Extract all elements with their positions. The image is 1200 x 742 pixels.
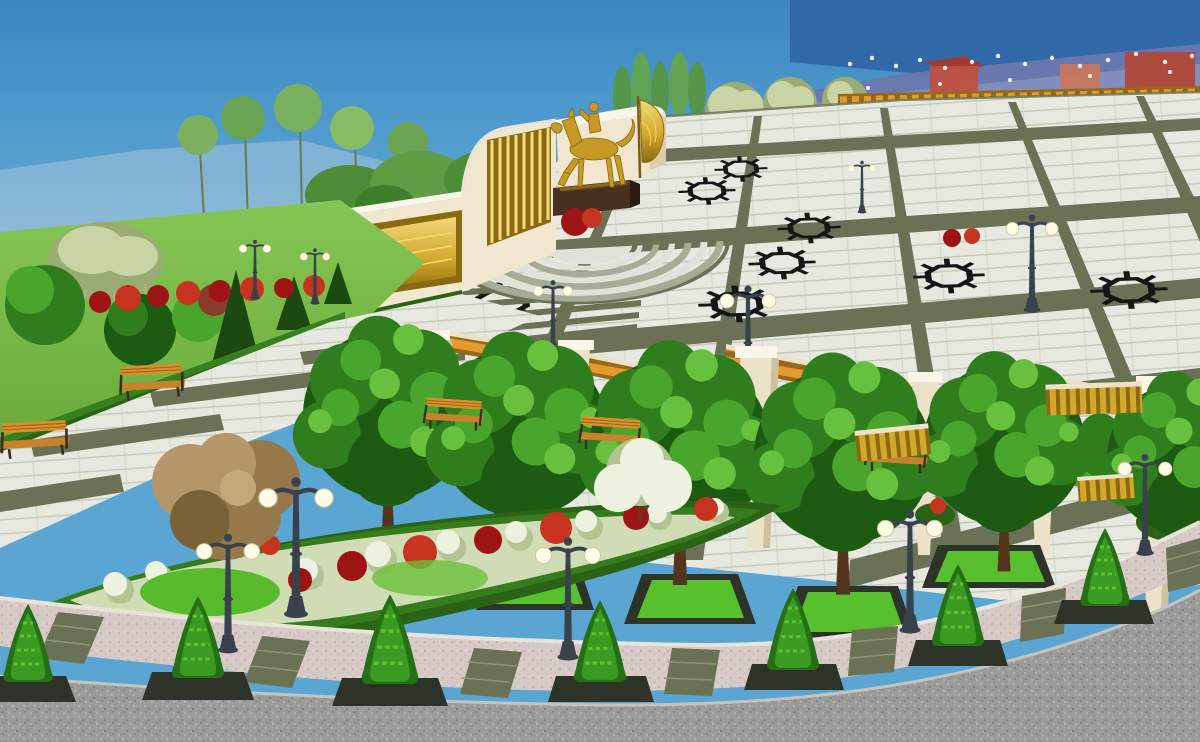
park-plaza-render [0, 0, 1200, 742]
gold-slat-screen [1045, 381, 1142, 415]
lawn-patch [140, 568, 280, 616]
scene-canvas [0, 0, 1200, 742]
lawn-patch [372, 560, 488, 596]
gold-slat-screen [1077, 473, 1135, 502]
